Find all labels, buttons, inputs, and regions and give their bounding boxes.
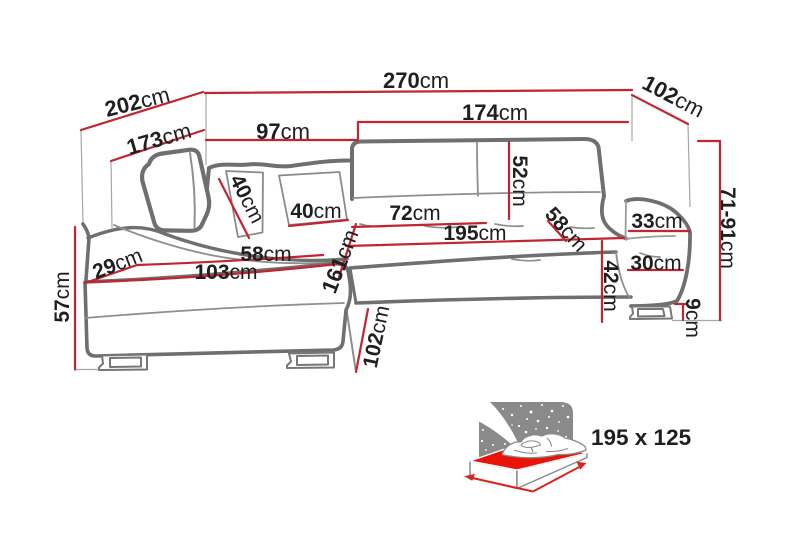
svg-text:42cm: 42cm bbox=[599, 260, 622, 311]
svg-text:174cm: 174cm bbox=[462, 100, 528, 125]
svg-text:30cm: 30cm bbox=[630, 252, 681, 275]
svg-text:71-91cm: 71-91cm bbox=[716, 187, 739, 269]
svg-text:57cm: 57cm bbox=[51, 271, 74, 322]
svg-text:72cm: 72cm bbox=[389, 202, 440, 225]
svg-text:52cm: 52cm bbox=[508, 155, 531, 206]
svg-text:97cm: 97cm bbox=[256, 119, 310, 144]
svg-text:33cm: 33cm bbox=[631, 210, 682, 233]
svg-text:195 x 125: 195 x 125 bbox=[591, 425, 691, 450]
svg-text:40cm: 40cm bbox=[290, 200, 341, 223]
svg-text:195cm: 195cm bbox=[443, 222, 506, 245]
svg-text:9cm: 9cm bbox=[681, 298, 704, 338]
svg-text:103cm: 103cm bbox=[194, 261, 257, 284]
svg-text:270cm: 270cm bbox=[383, 68, 449, 93]
